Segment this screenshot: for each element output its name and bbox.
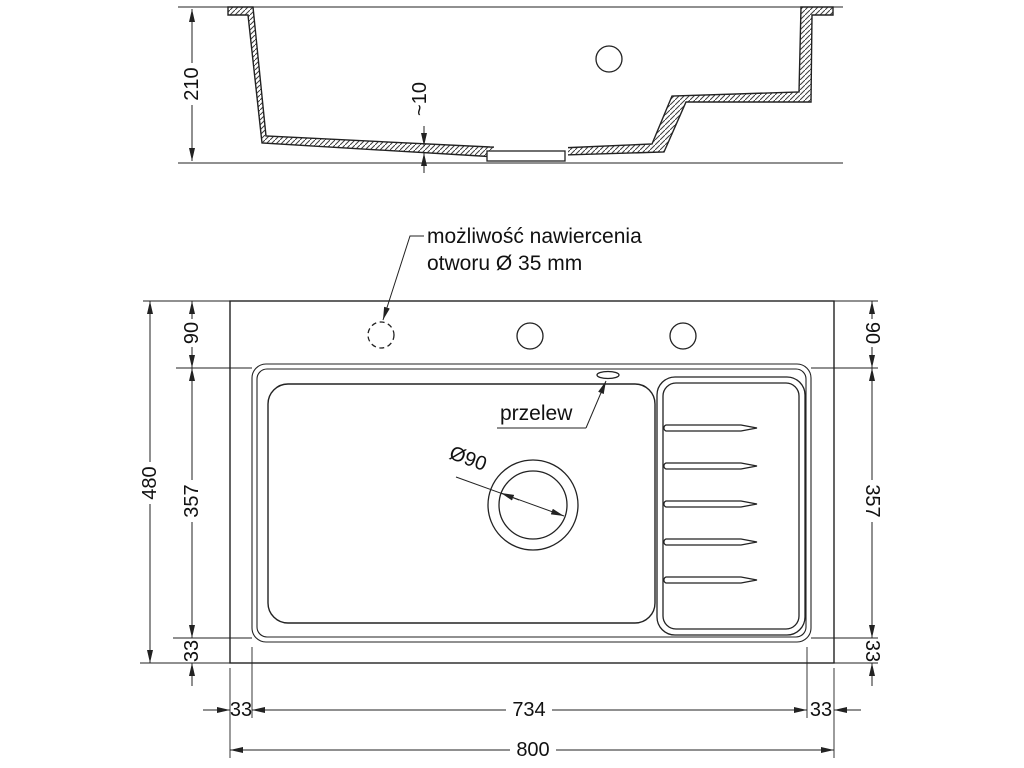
dim-bottom-offset-left-label: 33 — [181, 640, 203, 662]
dim-bowl-height-right-label: 357 — [861, 484, 883, 517]
dim-bottom-offset-right-label: 33 — [861, 640, 883, 662]
drainer-groove — [664, 501, 757, 507]
drainer-groove — [664, 539, 757, 545]
dim-bowl-height-right: 357 — [861, 368, 883, 638]
dim-overall-depth-label: 210 — [181, 67, 203, 100]
overflow-label: przelew — [500, 402, 573, 425]
sink-drawing-svg: 210 ~10 — [0, 0, 1024, 768]
drainer-groove — [664, 425, 757, 431]
dim-overall-width: 800 — [230, 739, 834, 761]
dim-top-offset-right: 90 — [861, 301, 883, 368]
dim-bowl-height-left: 357 — [181, 368, 203, 638]
drainer-groove — [664, 577, 757, 583]
section-view: 210 ~10 — [178, 7, 843, 173]
dim-overall-height-label: 480 — [139, 466, 161, 499]
dim-cutout-width: 734 — [252, 699, 807, 721]
dim-side-offset-right: 33 — [810, 699, 861, 721]
dim-overall-height: 480 — [139, 301, 161, 663]
faucet-hole-2 — [517, 323, 543, 349]
faucet-hole-optional-dashed — [368, 322, 394, 348]
drill-annotation-line2: otworu Ø 35 mm — [427, 252, 582, 275]
dim-side-offset-right-label: 33 — [810, 699, 832, 721]
plan-view: Ø90 przelew możliwość nawiercenia otworu… — [139, 225, 883, 761]
dim-drain-diameter-label: Ø90 — [446, 442, 489, 476]
dim-bowl-height-left-label: 357 — [181, 484, 203, 517]
dim-top-offset-right-label: 90 — [861, 322, 883, 344]
dim-bottom-offset-left: 33 — [181, 640, 203, 686]
overflow-slot — [597, 372, 619, 379]
dim-bottom-thickness-label: ~10 — [409, 82, 431, 116]
dim-top-offset-left-label: 90 — [181, 322, 203, 344]
section-material-profile — [228, 7, 833, 157]
drill-annotation: możliwość nawiercenia otworu Ø 35 mm — [383, 225, 642, 320]
dim-side-offset-left: 33 — [203, 699, 252, 721]
technical-drawing-page: 210 ~10 — [0, 0, 1024, 768]
dim-cutout-width-label: 734 — [512, 699, 545, 721]
dim-overall-width-label: 800 — [516, 739, 549, 761]
dim-overall-depth: 210 — [181, 9, 203, 161]
dim-drain-diameter: Ø90 — [446, 442, 564, 516]
dim-side-offset-left-label: 33 — [230, 699, 252, 721]
drainer-groove — [664, 463, 757, 469]
section-drain-fitting — [487, 151, 565, 161]
overflow-annotation: przelew — [497, 381, 606, 428]
dim-top-offset-left: 90 — [181, 301, 203, 368]
bowl-rect — [268, 384, 655, 623]
drill-annotation-line1: możliwość nawiercenia — [427, 225, 642, 248]
faucet-hole-3 — [670, 323, 696, 349]
dim-bottom-thickness: ~10 — [409, 82, 431, 173]
section-hole-circle — [596, 46, 622, 72]
